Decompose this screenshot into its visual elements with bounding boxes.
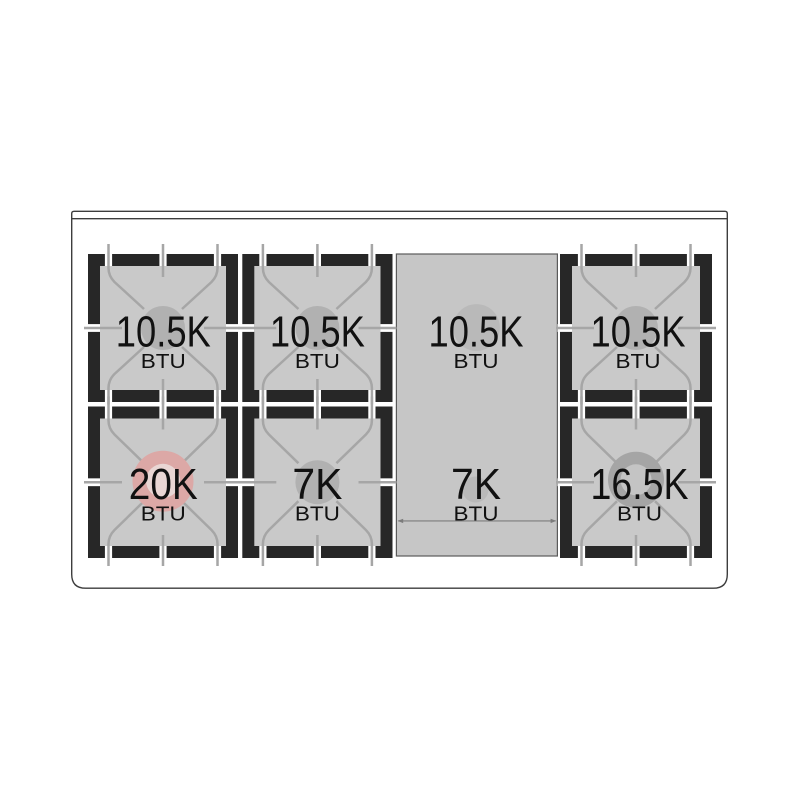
- svg-text:BTU: BTU: [454, 503, 499, 525]
- svg-text:7K: 7K: [292, 460, 342, 509]
- svg-text:BTU: BTU: [454, 351, 499, 373]
- svg-text:10.5K: 10.5K: [591, 308, 686, 357]
- svg-text:16.5K: 16.5K: [591, 460, 689, 509]
- svg-text:10.5K: 10.5K: [116, 308, 211, 357]
- svg-text:10.5K: 10.5K: [429, 308, 524, 357]
- svg-text:BTU: BTU: [141, 503, 186, 525]
- svg-text:BTU: BTU: [295, 503, 340, 525]
- svg-text:20K: 20K: [129, 460, 198, 509]
- svg-text:BTU: BTU: [617, 503, 662, 525]
- svg-text:10.5K: 10.5K: [270, 308, 365, 357]
- svg-text:BTU: BTU: [616, 351, 661, 373]
- svg-text:BTU: BTU: [141, 351, 186, 373]
- svg-text:7K: 7K: [451, 460, 501, 509]
- svg-text:BTU: BTU: [295, 351, 340, 373]
